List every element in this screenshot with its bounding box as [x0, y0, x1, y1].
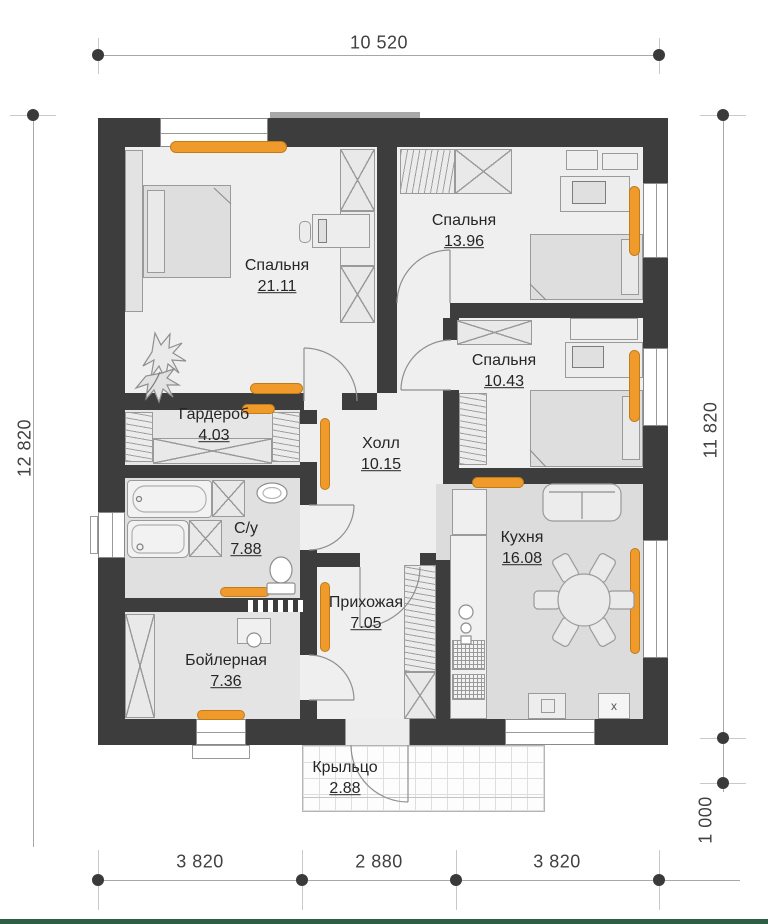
dim-label-bottom-1: 3 820 [176, 852, 224, 873]
room-area: 10.43 [472, 372, 536, 393]
oven-icon [452, 674, 485, 700]
cabinet-icon [212, 480, 245, 517]
closet-rail-icon [404, 565, 436, 672]
room-label-bedroom-2: Спальня 13.96 [432, 211, 496, 253]
room-name: Бойлерная [185, 651, 267, 672]
cabinet-detail [541, 699, 555, 713]
room-label-bathroom: С/у 7.88 [230, 519, 261, 561]
dim-line-left [33, 112, 34, 847]
room-label-kitchen: Кухня 16.08 [501, 528, 544, 570]
cabinet-icon [528, 693, 566, 719]
room-label-wardrobe: Гардероб 4.03 [179, 405, 249, 447]
closet-rail-icon [459, 393, 487, 465]
bathtub-icon [127, 480, 212, 518]
room-area: 7.05 [329, 614, 403, 635]
window-icon [196, 719, 246, 745]
wardrobe-icon [404, 672, 436, 719]
room-label-hall: Холл 10.15 [361, 434, 401, 476]
room-area: 16.08 [501, 549, 544, 570]
dim-line-top [98, 55, 659, 56]
wall [300, 550, 317, 600]
pillow-icon [147, 190, 165, 273]
wall [450, 303, 643, 318]
stove-icon [452, 640, 485, 670]
wall [443, 390, 459, 468]
dim-line-right [723, 112, 724, 792]
dresser-icon [602, 153, 638, 170]
dim-label-right: 11 820 [701, 402, 722, 459]
window-icon [505, 719, 595, 745]
room-name: Гардероб [179, 405, 249, 426]
wall [300, 612, 317, 655]
room-name: Спальня [245, 256, 309, 277]
room-area: 10.15 [361, 455, 401, 476]
closet-rail-icon [400, 149, 455, 194]
radiator-icon [630, 548, 640, 654]
monitor-icon [572, 346, 604, 368]
dim-dot [296, 874, 308, 886]
entrance-threshold [345, 719, 410, 745]
fridge-icon [452, 489, 487, 535]
cabinet-icon [189, 520, 222, 557]
radiator-icon [320, 418, 330, 490]
bottom-accent-bar [0, 919, 768, 924]
closet-rail-icon [125, 412, 153, 462]
room-name: Холл [361, 434, 401, 455]
room-area: 4.03 [179, 426, 249, 447]
dim-label-top: 10 520 [350, 33, 408, 54]
radiator-icon [250, 383, 303, 394]
wall [317, 553, 360, 567]
dim-dot [92, 49, 104, 61]
chair-icon [299, 221, 311, 243]
window-icon [98, 512, 125, 558]
room-area: 21.11 [245, 277, 309, 298]
dim-line-bottom [98, 880, 740, 881]
dim-label-bottom-3: 3 820 [533, 852, 581, 873]
wall [98, 465, 317, 478]
dim-dot [717, 732, 729, 744]
wall [377, 147, 397, 393]
radiator-icon [472, 477, 524, 488]
dim-dot [27, 109, 39, 121]
radiator-icon [170, 141, 287, 153]
dim-dot [653, 49, 665, 61]
dim-dot [653, 874, 665, 886]
wall [300, 700, 317, 719]
floor-plan-canvas: 10 520 12 820 11 820 1 000 3 820 2 880 3… [0, 0, 768, 924]
room-label-boiler: Бойлерная 7.36 [185, 651, 267, 693]
wall [342, 393, 377, 410]
room-name: С/у [230, 519, 261, 540]
room-name: Спальня [432, 211, 496, 232]
manifold-icon [243, 600, 303, 612]
boiler-unit-icon [237, 618, 271, 644]
radiator-icon [629, 186, 640, 256]
closet-rail-icon [272, 412, 300, 462]
dim-label-right-lower: 1 000 [696, 796, 717, 844]
dim-label-left: 12 820 [15, 419, 36, 477]
room-label-porch: Крыльцо 2.88 [312, 758, 377, 800]
room-label-bedroom-3: Спальня 10.43 [472, 351, 536, 393]
dresser-icon [566, 150, 598, 170]
dim-dot [450, 874, 462, 886]
room-area: 2.88 [312, 779, 377, 800]
window-icon [643, 540, 668, 658]
room-label-entrance-hall: Прихожая 7.05 [329, 593, 403, 635]
window-icon [643, 348, 668, 426]
radiator-icon [220, 587, 270, 597]
window-sill [90, 516, 98, 554]
dresser-icon [570, 318, 638, 340]
lintel-strip [270, 112, 420, 118]
monitor-icon [318, 219, 327, 243]
wall [300, 478, 317, 505]
wall [436, 560, 450, 719]
room-area: 7.88 [230, 540, 261, 561]
window-step [192, 745, 250, 759]
room-area: 13.96 [432, 232, 496, 253]
dim-label-bottom-2: 2 880 [355, 852, 403, 873]
wardrobe-icon [455, 149, 512, 194]
room-name: Прихожая [329, 593, 403, 614]
wardrobe-icon [340, 149, 375, 211]
window-icon [643, 183, 668, 258]
room-area: 7.36 [185, 672, 267, 693]
radiator-icon [197, 710, 245, 720]
vent-marker: x [598, 693, 630, 719]
room-name: Спальня [472, 351, 536, 372]
room-name: Крыльцо [312, 758, 377, 779]
dim-dot [717, 109, 729, 121]
wardrobe-icon [125, 614, 155, 718]
room-label-bedroom-1: Спальня 21.11 [245, 256, 309, 298]
wardrobe-icon [457, 320, 532, 345]
dim-dot [717, 777, 729, 789]
monitor-icon [572, 181, 606, 204]
wardrobe-icon [340, 266, 375, 323]
nightstand-icon [125, 150, 143, 312]
room-name: Кухня [501, 528, 544, 549]
radiator-icon [629, 350, 640, 422]
shower-icon [127, 520, 189, 558]
dim-dot [92, 874, 104, 886]
vent-label: x [611, 699, 617, 713]
wall [300, 410, 317, 424]
